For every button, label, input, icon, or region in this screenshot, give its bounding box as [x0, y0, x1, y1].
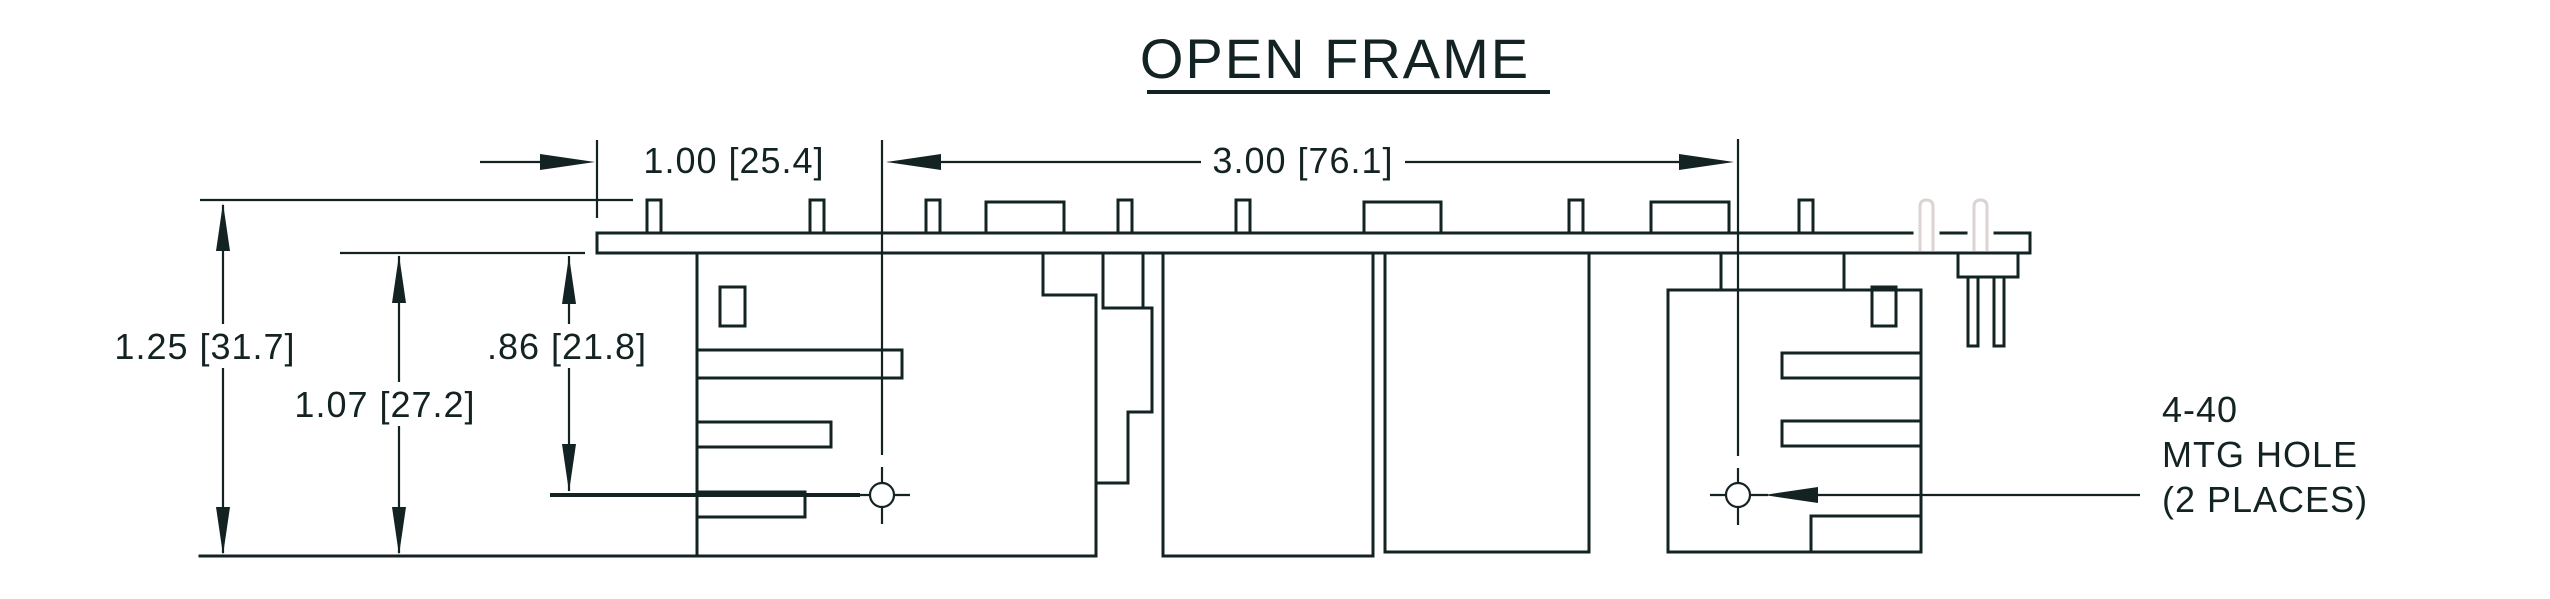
heatsink-fin: [697, 422, 831, 447]
arrowhead-down-icon: [562, 444, 576, 492]
left-heatsink: [697, 253, 902, 556]
mounting-hole-symbol-left: [870, 483, 894, 507]
top-components-group: [986, 202, 1729, 233]
arrowhead-down-icon: [216, 507, 230, 555]
small-component-left: [720, 287, 745, 326]
mtg-hole-callout: 4-40 MTG HOLE (2 PLACES): [2162, 389, 2368, 520]
arrowhead-up-icon: [562, 256, 576, 304]
header-pin: [1968, 277, 1978, 346]
heatsink-fin: [1782, 421, 1921, 446]
drawing-title: OPEN FRAME: [1140, 27, 1530, 90]
top-pins-group: [647, 200, 1813, 233]
header-body: [1958, 253, 2018, 277]
pin-icon: [810, 200, 824, 233]
arrowhead-left-icon: [1764, 487, 1818, 503]
phantom-pin-icon: [1974, 200, 1987, 251]
pin-icon: [1236, 200, 1250, 233]
arrowhead-up-icon: [392, 255, 406, 303]
right-header: [1958, 253, 2018, 346]
heatsink-fin: [1811, 516, 1921, 552]
small-component-right: [1872, 287, 1896, 326]
dim-label-board-to-base: 1.07 [27.2]: [294, 384, 475, 425]
top-component-block: [986, 202, 1064, 233]
transformer-block-b: [1385, 253, 1589, 552]
pcb-board: [597, 233, 2030, 253]
arrowhead-right-icon: [540, 154, 595, 170]
phantom-pin-icon: [1920, 200, 1933, 251]
dim-label-hole-to-hole: 3.00 [76.1]: [1212, 140, 1393, 181]
center-bracket-cluster: [1043, 253, 1152, 556]
arrowhead-left-icon: [886, 154, 941, 170]
heatsink-fin: [697, 350, 902, 378]
pin-icon: [647, 200, 661, 233]
pin-icon: [1118, 200, 1132, 233]
technical-drawing-canvas: OPEN FRAME: [0, 0, 2550, 599]
arrowheads-group: [216, 154, 1818, 555]
phantom-pins-group: [1920, 200, 1987, 251]
pin-icon: [1569, 200, 1583, 233]
pin-icon: [926, 200, 940, 233]
open-frame-drawing-sheet: OPEN FRAME: [0, 0, 2550, 599]
callout-line-3: (2 PLACES): [2162, 479, 2368, 520]
dim-label-board-to-hole: .86 [21.8]: [487, 326, 647, 367]
dim-label-board-edge-to-hole: 1.00 [25.4]: [643, 140, 824, 181]
transformer-block-a: [1163, 253, 1373, 556]
arrowhead-down-icon: [392, 507, 406, 555]
right-heatsink: [1668, 253, 1921, 552]
top-component-block: [1651, 202, 1729, 233]
callout-line-2: MTG HOLE: [2162, 434, 2358, 475]
heatsink-fin: [1782, 353, 1921, 378]
arrowhead-up-icon: [216, 203, 230, 251]
callout-line-1: 4-40: [2162, 389, 2238, 430]
mounting-hole-symbol-right: [1726, 483, 1750, 507]
dim-label-overall-height: 1.25 [31.7]: [114, 326, 295, 367]
top-component-block: [1364, 202, 1441, 233]
pin-icon: [1799, 200, 1813, 233]
header-pin: [1994, 277, 2004, 346]
arrowhead-right-icon: [1679, 154, 1734, 170]
bracket-step-outline: [1043, 253, 1096, 556]
dimension-labels-group: 1.00 [25.4] 3.00 [76.1] 1.25 [31.7] 1.07…: [103, 138, 1405, 426]
